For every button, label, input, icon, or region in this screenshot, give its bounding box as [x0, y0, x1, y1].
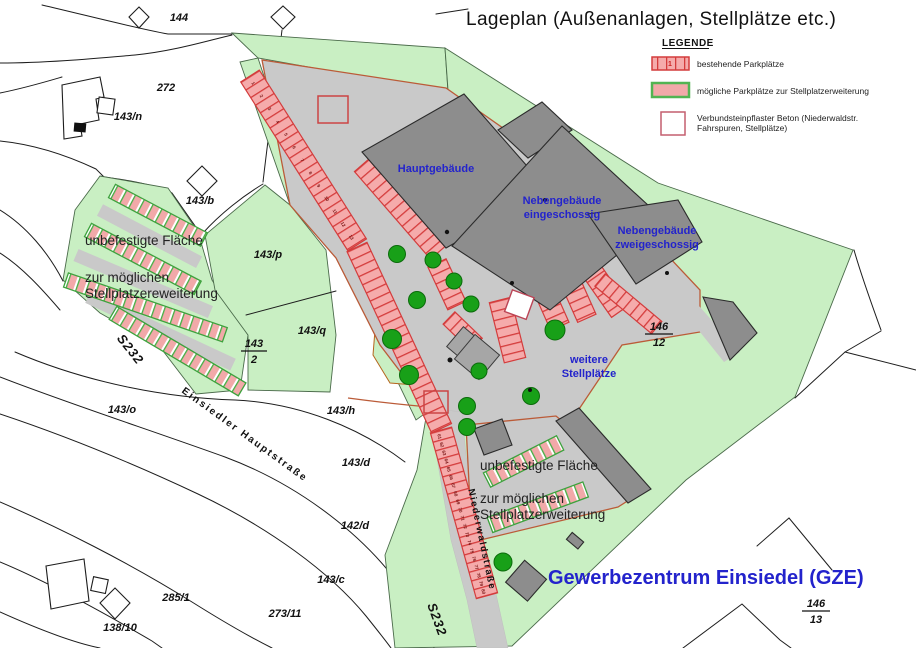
- label-nebengebaeude1-l2: eingeschossig: [524, 209, 600, 221]
- parcel-label-143c: 143/c: [317, 574, 345, 586]
- legend-swatch-paver: [661, 112, 685, 135]
- tree: [471, 363, 487, 379]
- parcel-label-143q: 143/q: [298, 325, 326, 337]
- legend-swatch-possible: [652, 83, 689, 97]
- svg-text:146: 146: [807, 598, 826, 610]
- parcel-label-285-1: 285/1: [161, 592, 190, 604]
- diamond-top-2: [129, 7, 149, 28]
- site-plan-map: Lageplan (Außenanlagen, Stellplätze etc.…: [0, 0, 916, 648]
- label-nebengebaeude1-l1: Nebengebäude: [523, 195, 602, 207]
- label-nebengebaeude2-l1: Nebengebäude: [618, 225, 697, 237]
- page-title: Lageplan (Außenanlagen, Stellplätze etc.…: [466, 9, 836, 30]
- tree: [459, 419, 476, 436]
- svg-text:146: 146: [650, 321, 669, 333]
- parcel-label-143n: 143/n: [114, 111, 142, 123]
- fraction-146-13: 146 13: [802, 598, 830, 626]
- label-area-bottom-l3: Stellplatzerweiterung: [480, 507, 605, 522]
- parcel-label-272: 272: [156, 82, 175, 94]
- label-weitere-l1: weitere: [569, 354, 608, 366]
- house-bottom-left: [46, 559, 89, 609]
- tree: [383, 330, 402, 349]
- label-nebengebaeude2-l2: zweigeschossig: [615, 239, 699, 251]
- label-hauptgebaeude: Hauptgebäude: [398, 163, 474, 175]
- tree: [463, 296, 479, 312]
- legend-label-paver-l2: Fahrspuren, Stellplätze): [697, 123, 787, 133]
- label-area-left-l1: unbefestigte Fläche: [85, 233, 203, 248]
- site-plan-page: Lageplan (Außenanlagen, Stellplätze etc.…: [0, 0, 916, 648]
- site-label-gze: Gewerbezentrum Einsiedel (GZE): [548, 567, 864, 589]
- parcel-label-142d: 142/d: [341, 520, 369, 532]
- svg-text:13: 13: [810, 614, 822, 626]
- label-area-bottom-l2: zur möglichen: [480, 491, 564, 506]
- tree: [389, 246, 406, 263]
- parcel-label-143p: 143/p: [254, 249, 282, 261]
- parcel-label-143h: 143/h: [327, 405, 355, 417]
- diamond-top-1: [271, 6, 295, 29]
- label-weitere-l2: Stellplätze: [562, 368, 616, 380]
- svg-text:143: 143: [245, 338, 263, 350]
- parcel-label-144: 144: [170, 12, 188, 24]
- parcel-label-138-10: 138/10: [103, 622, 138, 634]
- diamond-143b: [187, 166, 217, 196]
- house-top-left-sq: [97, 97, 115, 115]
- parcel-label-273-11: 273/11: [268, 608, 302, 620]
- legend-label-paver-l1: Verbundsteinpflaster Beton (Niederwaldst…: [697, 113, 858, 123]
- legend-heading: LEGENDE: [662, 38, 714, 49]
- tree: [400, 366, 419, 385]
- legend: LEGENDE 1 bestehende Parkplätze mögliche…: [652, 38, 869, 135]
- svg-text:12: 12: [653, 337, 665, 349]
- tree: [425, 252, 441, 268]
- label-area-left-l3: Stellplatzereweiterung: [85, 286, 218, 301]
- tree: [446, 273, 462, 289]
- legend-label-existing: bestehende Parkplätze: [697, 59, 784, 69]
- house-bottom-sq: [91, 577, 109, 594]
- legend-swatch-existing-number: 1: [668, 61, 672, 68]
- svg-text:2: 2: [250, 354, 257, 366]
- label-area-bottom-l1: unbefestigte Fläche: [480, 458, 598, 473]
- parcel-label-143o: 143/o: [108, 404, 136, 416]
- tree: [545, 320, 565, 340]
- parcel-label-143b: 143/b: [186, 195, 214, 207]
- house-top-left-dark: [74, 122, 87, 132]
- tree: [494, 553, 512, 571]
- label-area-left-l2: zur möglichen: [85, 270, 169, 285]
- tree: [459, 398, 476, 415]
- parcel-label-143d: 143/d: [342, 457, 370, 469]
- legend-label-possible: mögliche Parkplätze zur Stellplatzerweit…: [697, 86, 869, 96]
- tree: [409, 292, 426, 309]
